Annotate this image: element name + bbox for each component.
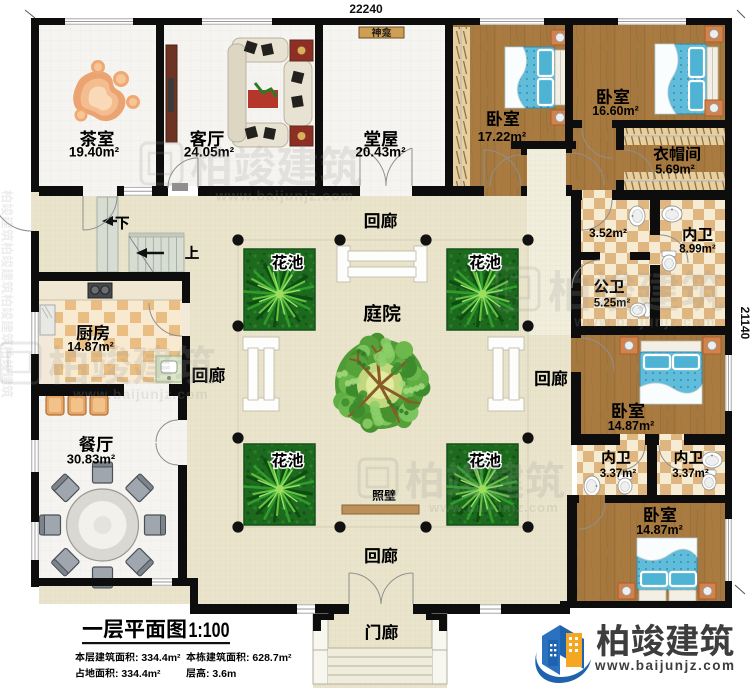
svg-text:www.baijunjz.com: www.baijunjz.com (428, 500, 559, 515)
svg-text:www.baijunjz.com: www.baijunjz.com (215, 189, 354, 205)
svg-text:5.69m²: 5.69m² (655, 163, 695, 177)
svg-text:17.22m²: 17.22m² (478, 129, 527, 144)
svg-text:: 334.4m²: : 334.4m² (135, 652, 181, 664)
svg-text:20.43m²: 20.43m² (355, 145, 406, 160)
svg-text:14.87m²: 14.87m² (608, 419, 655, 433)
svg-text:14.87m²: 14.87m² (636, 523, 683, 537)
svg-text:www.baijunjz.com: www.baijunjz.com (594, 658, 736, 673)
svg-text:16.60m²: 16.60m² (592, 104, 639, 118)
svg-text:19.40m²: 19.40m² (69, 145, 120, 160)
svg-text:3.52m²: 3.52m² (589, 226, 627, 240)
svg-text:www.baijunjz.com: www.baijunjz.com (573, 314, 715, 330)
svg-text:www.baijunjz.com: www.baijunjz.com (72, 386, 209, 402)
svg-text:30.83m²: 30.83m² (67, 452, 116, 467)
svg-text:: 3.6m: : 3.6m (206, 668, 236, 680)
svg-text:: 334.4m²: : 334.4m² (115, 668, 161, 680)
svg-text:22240: 22240 (349, 2, 383, 16)
svg-text:1:100: 1:100 (189, 619, 230, 642)
svg-text:21140: 21140 (738, 307, 750, 340)
svg-text:: 628.7m²: : 628.7m² (246, 652, 292, 664)
svg-text:3.37m²: 3.37m² (600, 468, 637, 480)
svg-text:8.99m²: 8.99m² (679, 244, 716, 256)
svg-text:3.37m²: 3.37m² (672, 468, 709, 480)
